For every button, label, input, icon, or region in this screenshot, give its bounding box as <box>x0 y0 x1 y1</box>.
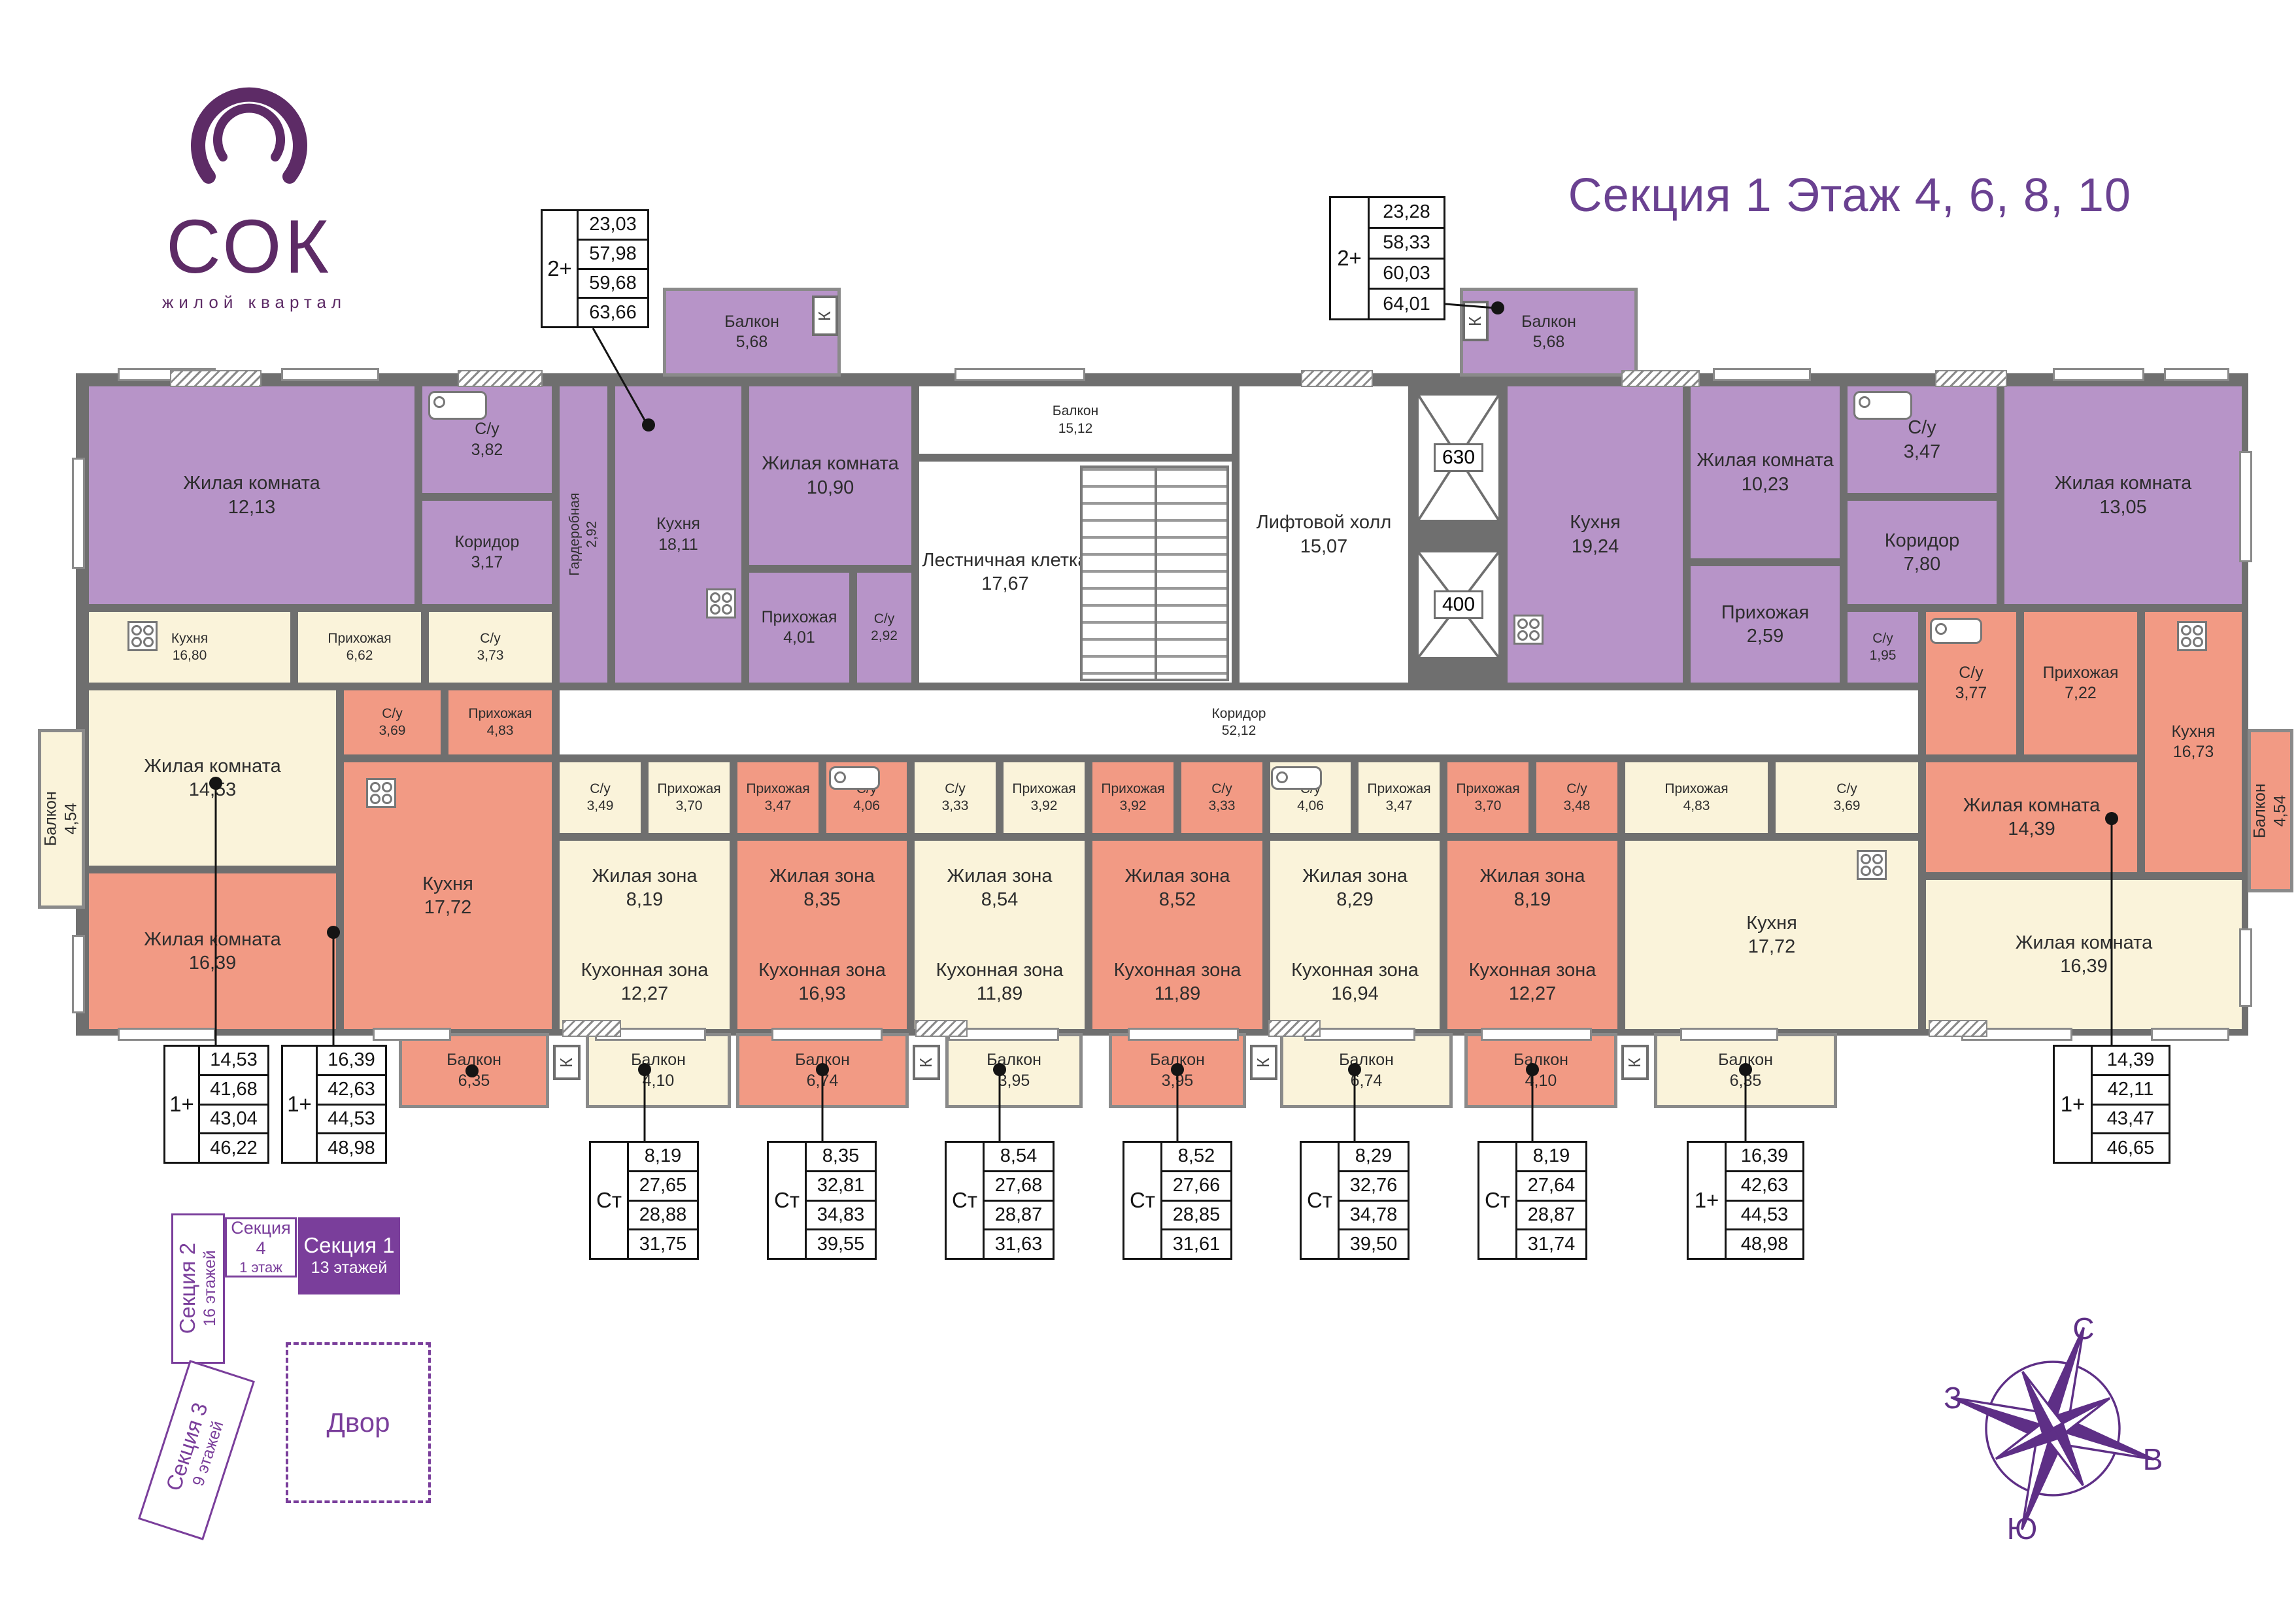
stove-icon-2 <box>1513 615 1544 645</box>
compass-north-label: С <box>2072 1311 2094 1346</box>
table-type-label: 1+ <box>1689 1143 1727 1258</box>
bathtub-icon-4 <box>829 766 880 790</box>
window-4 <box>1713 368 1811 381</box>
table-t1plusA: 1+14,5341,6843,0446,22 <box>163 1045 269 1164</box>
table-area-value: 44,53 <box>1727 1200 1802 1229</box>
room-s4prih: Прихожая3,92 <box>1089 758 1177 837</box>
table-area-value: 48,98 <box>1727 1228 1802 1258</box>
room-s6prih: Прихожая3,70 <box>1443 758 1532 837</box>
compass-east-label: В <box>2143 1442 2163 1477</box>
room-s2prih: Прихожая3,47 <box>734 758 822 837</box>
room-prih722: Прихожая7,22 <box>2020 608 2141 758</box>
room-su369L: С/у3,69 <box>340 686 445 758</box>
table-area-value: 42,11 <box>2093 1074 2169 1104</box>
table-t1plusB: 1+16,3942,6344,5348,98 <box>281 1045 387 1164</box>
page-title: Секция 1 Этаж 4, 6, 8, 10 <box>1568 169 2131 222</box>
table-st5: Ст8,2932,7634,7839,50 <box>1300 1141 1410 1260</box>
balcony-b674a: Балкон6,74 <box>736 1033 909 1108</box>
table-area-value: 23,03 <box>579 211 647 239</box>
section-1-floors: 13 этажей <box>303 1258 394 1278</box>
table-t1plusR: 1+16,3942,6344,5348,98 <box>1687 1141 1804 1260</box>
yard-area: Двор <box>286 1342 431 1503</box>
section-2-label: Секция 2 <box>175 1243 200 1334</box>
window-19 <box>72 935 85 1013</box>
room-su373: С/у3,73 <box>425 608 556 686</box>
room-su195: С/у1,95 <box>1844 608 1922 686</box>
table-area-value: 44,53 <box>318 1104 385 1133</box>
room-s2zone: Жилая зона8,35Кухонная зона16,93 <box>734 837 911 1033</box>
table-area-value: 27,65 <box>629 1170 697 1200</box>
table-type-label: Ст <box>947 1143 985 1258</box>
logo-title: СОК <box>162 209 336 284</box>
stove-icon-5 <box>1857 850 1887 880</box>
table-area-value: 42,63 <box>318 1074 385 1104</box>
compass-rose-icon <box>1942 1317 2164 1540</box>
bathtub-icon-1 <box>428 391 487 420</box>
table-st1: Ст8,1927,6528,8831,75 <box>589 1141 699 1260</box>
compass-west-label: З <box>1944 1380 1962 1415</box>
siteplan-section-3: Секция 39 этажей <box>138 1360 255 1540</box>
balcony-b635R: Балкон6,35 <box>1654 1033 1837 1108</box>
table-type-label: Ст <box>769 1143 807 1258</box>
table-type-label: Ст <box>591 1143 629 1258</box>
table-area-value: 27,68 <box>985 1170 1053 1200</box>
table-area-value: 60,03 <box>1370 258 1443 288</box>
balcony-b454R: Балкон4,54 <box>2248 729 2293 892</box>
table-area-value: 16,39 <box>318 1047 385 1074</box>
table-type-label: 1+ <box>2055 1047 2093 1162</box>
window-6 <box>2164 368 2229 381</box>
table-area-value: 14,39 <box>2093 1047 2169 1074</box>
room-s1prih: Прихожая3,70 <box>645 758 734 837</box>
balcony-b674b: Балкон6,74 <box>1280 1033 1453 1108</box>
room-zk1305: Жилая комната13,05 <box>2001 382 2246 608</box>
table-type-label: 2+ <box>1331 198 1370 318</box>
stove-icon-1 <box>706 588 736 618</box>
section-4-floors: 1 этаж <box>227 1259 295 1277</box>
room-prih259: Прихожая2,59 <box>1687 562 1844 686</box>
room-prih401: Прихожая4,01 <box>745 569 853 686</box>
compass-south-label: Ю <box>2007 1511 2037 1546</box>
wall-hatch-3 <box>1301 370 1373 387</box>
vent-K-box-3: К <box>553 1045 581 1080</box>
table-st4: Ст8,5227,6628,8531,61 <box>1123 1141 1232 1260</box>
room-s1zone: Жилая зона8,19Кухонная зона12,27 <box>556 837 734 1033</box>
table-t2plusR: 2+23,2858,3360,0364,01 <box>1329 196 1445 320</box>
table-area-value: 34,83 <box>807 1200 875 1229</box>
table-area-value: 58,33 <box>1370 227 1443 258</box>
table-area-value: 43,04 <box>200 1104 267 1133</box>
siteplan-section-4: Секция 41 этаж <box>225 1217 297 1277</box>
table-area-value: 59,68 <box>579 268 647 297</box>
balcony-b395a: Балкон3,95 <box>945 1033 1083 1108</box>
balcony-b454L: Балкон4,54 <box>38 729 85 909</box>
table-area-value: 34,78 <box>1340 1200 1408 1229</box>
logo-tagline: жилой квартал <box>162 292 336 313</box>
table-area-value: 28,87 <box>1517 1200 1585 1229</box>
room-s3su: С/у3,33 <box>911 758 1000 837</box>
room-s4zone: Жилая зона8,52Кухонная зона11,89 <box>1089 837 1266 1033</box>
wall-hatch-2 <box>458 370 543 387</box>
table-type-label: 1+ <box>283 1047 318 1162</box>
table-area-value: 8,54 <box>985 1143 1053 1170</box>
window-14 <box>1481 1028 1592 1041</box>
room-prih483R: Прихожая4,83 <box>1621 758 1772 837</box>
room-s6su: С/у3,48 <box>1532 758 1621 837</box>
vent-K-box-5: К <box>1250 1045 1277 1080</box>
vent-K-box-6: К <box>1621 1045 1649 1080</box>
room-zk1639L: Жилая комната16,39 <box>85 870 340 1033</box>
table-st3: Ст8,5427,6828,8731,63 <box>945 1141 1055 1260</box>
table-area-value: 28,88 <box>629 1200 697 1229</box>
stove-icon-4 <box>366 778 396 808</box>
window-10 <box>771 1028 883 1041</box>
elevator-630: 630 <box>1415 392 1502 523</box>
bathtub-icon-5 <box>1271 766 1322 790</box>
table-area-value: 14,53 <box>200 1047 267 1074</box>
table-area-value: 46,22 <box>200 1132 267 1162</box>
table-area-value: 32,81 <box>807 1170 875 1200</box>
wall-hatch-8 <box>1268 1020 1321 1037</box>
table-area-value: 31,74 <box>1517 1228 1585 1258</box>
room-s4su: С/у3,33 <box>1177 758 1266 837</box>
window-7 <box>118 1028 216 1041</box>
siteplan-section-2: Секция 216 этажей <box>171 1213 225 1364</box>
table-area-value: 46,65 <box>2093 1132 2169 1162</box>
vent-K-box-2: К <box>1462 301 1489 341</box>
logo: СОК жилой квартал <box>162 84 336 313</box>
table-type-label: 1+ <box>165 1047 200 1162</box>
elevator-400: 400 <box>1415 549 1502 660</box>
window-20 <box>2239 451 2252 562</box>
room-s3prih: Прихожая3,92 <box>1000 758 1089 837</box>
section-2-floors: 16 этажей <box>200 1243 220 1334</box>
stairs-icon <box>1080 465 1229 681</box>
table-area-value: 57,98 <box>579 239 647 268</box>
table-type-label: Ст <box>1124 1143 1162 1258</box>
room-zk1023: Жилая комната10,23 <box>1687 382 1844 562</box>
room-kuh1811: Кухня18,11 <box>611 382 745 686</box>
table-type-label: Ст <box>1302 1143 1340 1258</box>
room-kuh1680: Кухня16,80 <box>85 608 294 686</box>
table-area-value: 64,01 <box>1370 288 1443 318</box>
room-kor317: Коридор3,17 <box>418 497 556 608</box>
wall-hatch-5 <box>1935 370 2007 387</box>
table-area-value: 63,66 <box>579 297 647 326</box>
table-type-label: 2+ <box>543 211 579 326</box>
table-area-value: 8,35 <box>807 1143 875 1170</box>
wall-hatch-7 <box>915 1020 968 1037</box>
table-area-value: 27,66 <box>1162 1170 1230 1200</box>
room-su369R: С/у3,69 <box>1772 758 1922 837</box>
window-21 <box>2239 928 2252 1007</box>
table-type-label: Ст <box>1479 1143 1517 1258</box>
table-area-value: 31,75 <box>629 1228 697 1258</box>
vent-K-box-4: К <box>913 1045 940 1080</box>
logo-crescent-icon <box>180 84 318 201</box>
window-3 <box>954 368 1085 381</box>
room-s3zone: Жилая зона8,54Кухонная зона11,89 <box>911 837 1089 1033</box>
section-4-label: Секция 4 <box>227 1218 295 1259</box>
room-kor5212: Коридор52,12 <box>556 686 1922 758</box>
wall-hatch-4 <box>1621 370 1700 387</box>
table-area-value: 31,63 <box>985 1228 1053 1258</box>
room-s1su: С/у3,49 <box>556 758 645 837</box>
table-area-value: 32,76 <box>1340 1170 1408 1200</box>
bathtub-icon-3 <box>1930 618 1982 644</box>
vent-K-box-1: К <box>812 296 838 336</box>
room-su292: С/у2,92 <box>853 569 915 686</box>
window-17 <box>2151 1028 2229 1041</box>
room-lift1507: Лифтовой холл15,07 <box>1236 382 1412 686</box>
table-area-value: 39,55 <box>807 1228 875 1258</box>
window-5 <box>2053 368 2144 381</box>
table-area-value: 16,39 <box>1727 1143 1802 1170</box>
room-zk1213: Жилая комната12,13 <box>85 382 418 608</box>
table-t2plusL: 2+23,0357,9859,6863,66 <box>541 209 649 328</box>
window-18 <box>72 458 85 569</box>
table-area-value: 23,28 <box>1370 198 1443 227</box>
wall-hatch-1 <box>170 370 262 387</box>
table-area-value: 42,63 <box>1727 1170 1802 1200</box>
window-13 <box>1304 1028 1415 1041</box>
room-zk1090: Жилая комната10,90 <box>745 382 915 569</box>
balcony-b410a: Балкон4,10 <box>586 1033 731 1108</box>
balcony-b410b: Балкон4,10 <box>1464 1033 1617 1108</box>
section-1-label: Секция 1 <box>303 1233 394 1258</box>
room-balk1512: Балкон15,12 <box>915 382 1236 458</box>
table-area-value: 28,87 <box>985 1200 1053 1229</box>
table-area-value: 41,68 <box>200 1074 267 1104</box>
room-s6zone: Жилая зона8,19Кухонная зона12,27 <box>1443 837 1621 1033</box>
room-zk1639R: Жилая комната16,39 <box>1922 876 2246 1033</box>
room-s5zone: Жилая зона8,29Кухонная зона16,94 <box>1266 837 1443 1033</box>
bathtub-icon-2 <box>1853 391 1912 420</box>
window-2 <box>281 368 379 381</box>
table-area-value: 8,29 <box>1340 1143 1408 1170</box>
table-area-value: 48,98 <box>318 1132 385 1162</box>
room-gard292: Гардеробная2,92 <box>556 382 611 686</box>
table-st6: Ст8,1927,6428,8731,74 <box>1477 1141 1587 1260</box>
table-area-value: 28,85 <box>1162 1200 1230 1229</box>
table-area-value: 31,61 <box>1162 1228 1230 1258</box>
table-area-value: 8,19 <box>629 1143 697 1170</box>
table-area-value: 8,19 <box>1517 1143 1585 1170</box>
room-zk1453: Жилая комната14,53 <box>85 686 340 870</box>
siteplan-section-1: Секция 113 этажей <box>298 1217 400 1294</box>
room-prih483L: Прихожая4,83 <box>445 686 556 758</box>
table-area-value: 27,64 <box>1517 1170 1585 1200</box>
wall-hatch-9 <box>1929 1020 1987 1037</box>
stove-icon-6 <box>2177 621 2207 651</box>
balcony-b395b: Балкон3,95 <box>1109 1033 1246 1108</box>
floorplan-canvas: СОК жилой квартал Секция 1 Этаж 4, 6, 8,… <box>0 0 2296 1624</box>
room-prih662: Прихожая6,62 <box>294 608 425 686</box>
compass: С В Ю З <box>1922 1308 2197 1569</box>
stove-icon-3 <box>127 621 158 651</box>
table-t1plusFR: 1+14,3942,1143,4746,65 <box>2053 1045 2170 1164</box>
table-area-value: 43,47 <box>2093 1104 2169 1133</box>
window-8 <box>373 1028 451 1041</box>
table-area-value: 8,52 <box>1162 1143 1230 1170</box>
table-st2: Ст8,3532,8134,8339,55 <box>767 1141 877 1260</box>
balcony-b635L: Балкон6,35 <box>399 1033 549 1108</box>
window-12 <box>1128 1028 1239 1041</box>
wall-hatch-6 <box>562 1020 621 1037</box>
room-zk1439: Жилая комната14,39 <box>1922 758 2141 876</box>
room-kor780: Коридор7,80 <box>1844 497 2001 608</box>
room-s5prih: Прихожая3,47 <box>1355 758 1443 837</box>
window-15 <box>1680 1028 1778 1041</box>
table-area-value: 39,50 <box>1340 1228 1408 1258</box>
